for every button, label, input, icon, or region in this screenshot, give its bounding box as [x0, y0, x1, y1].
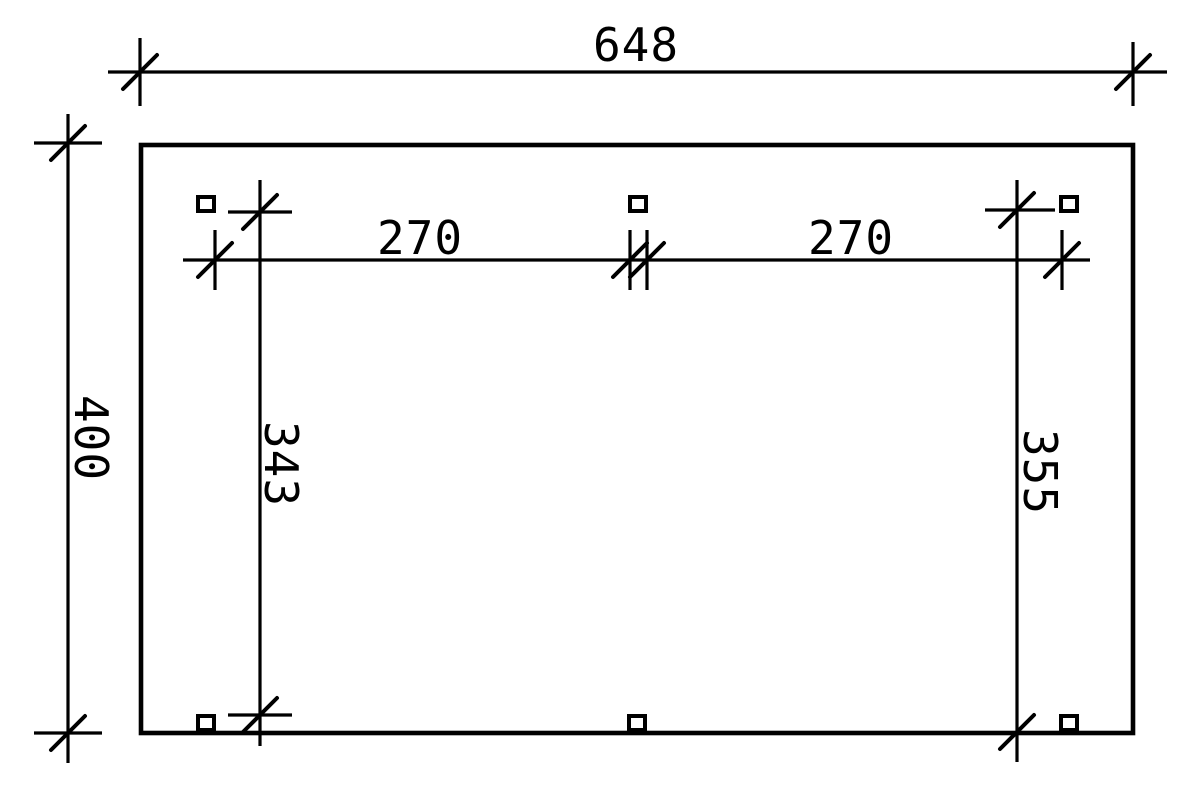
post-top-right: [1061, 197, 1077, 211]
label-inner-vertical-right: 355: [1013, 429, 1067, 515]
post-bottom-center: [629, 716, 645, 730]
post-top-center: [630, 197, 646, 211]
label-inner-span-right: 270: [808, 211, 894, 265]
label-left-total: 400: [64, 395, 118, 481]
dimension-drawing: 648 400 270 270 343 355: [0, 0, 1200, 800]
label-inner-span-left: 270: [377, 211, 463, 265]
label-inner-vertical-left: 343: [254, 421, 308, 507]
label-top-total: 648: [593, 18, 679, 72]
post-top-left: [198, 197, 214, 211]
post-bottom-left: [198, 716, 214, 730]
post-bottom-right: [1061, 716, 1077, 730]
